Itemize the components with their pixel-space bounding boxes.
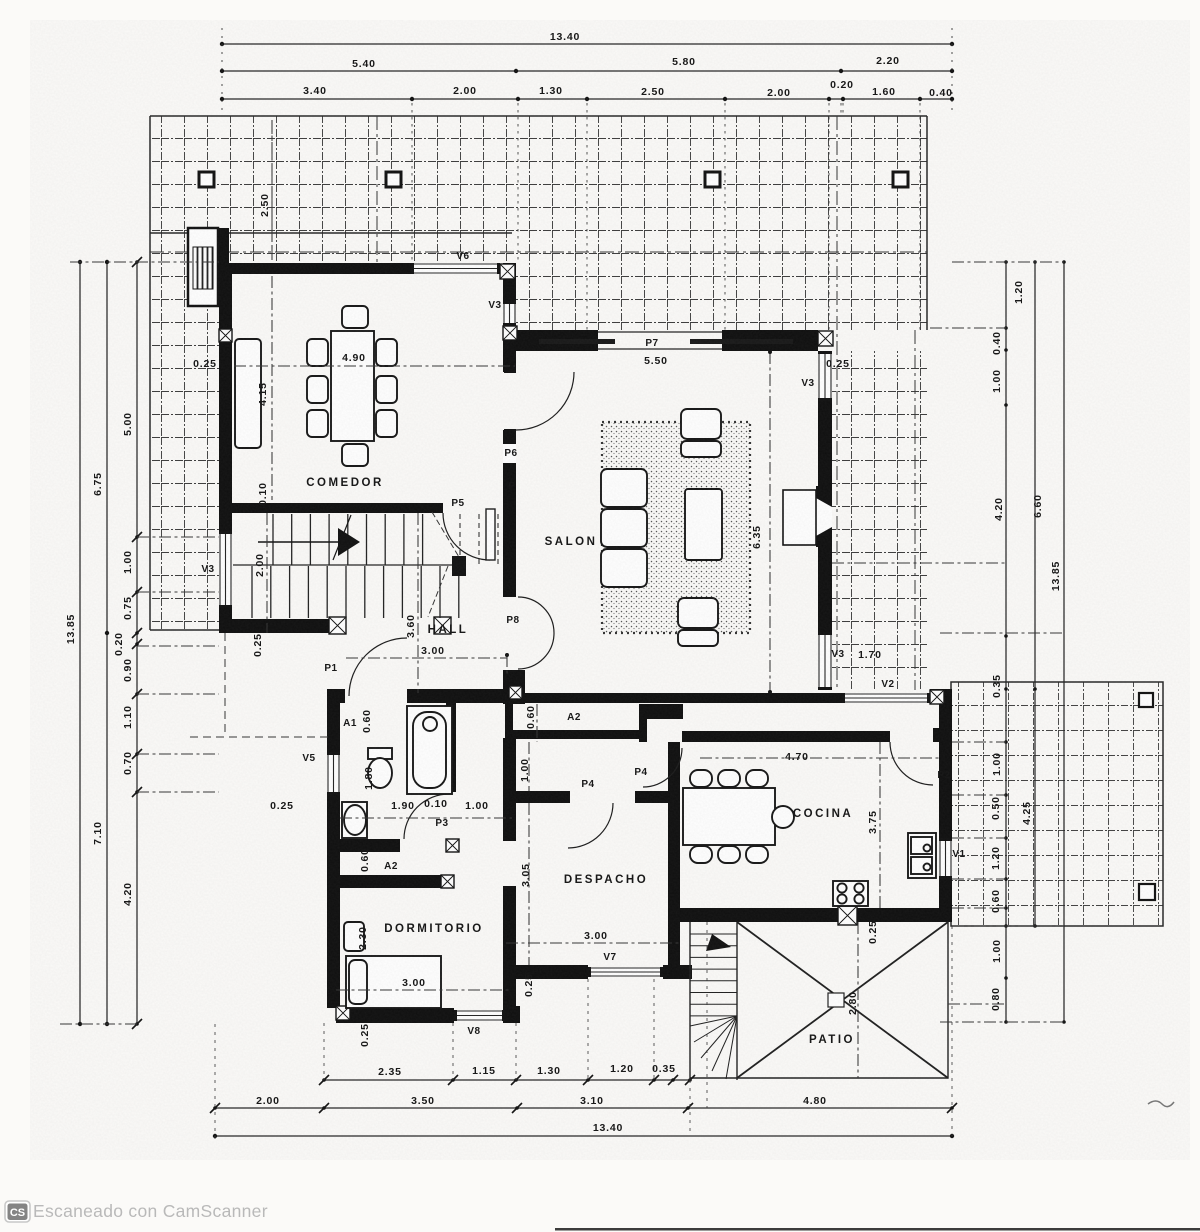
svg-text:CS: CS	[10, 1207, 25, 1219]
svg-text:Escaneado con CamScanner: Escaneado con CamScanner	[33, 1201, 268, 1221]
